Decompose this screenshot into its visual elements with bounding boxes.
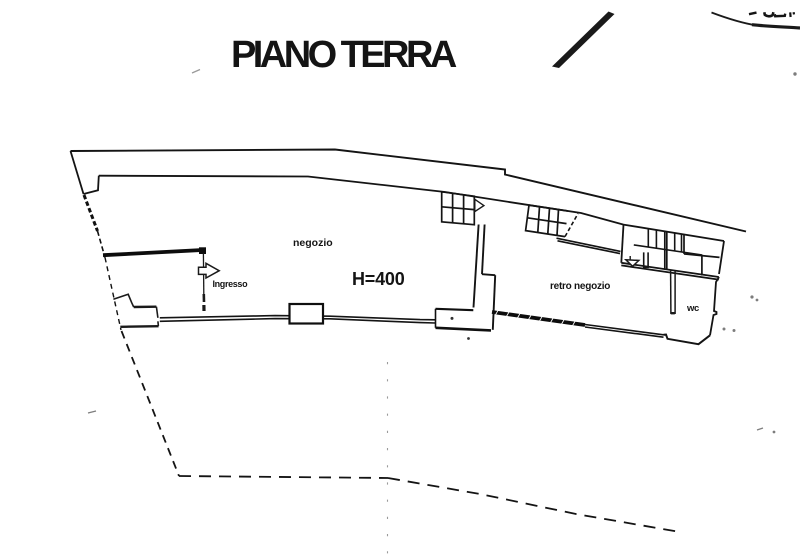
svg-text:Ingresso: Ingresso bbox=[213, 279, 249, 289]
svg-text:retro negozio: retro negozio bbox=[550, 281, 610, 292]
svg-text:H=400: H=400 bbox=[352, 269, 405, 289]
svg-text:negozio: negozio bbox=[293, 237, 333, 249]
svg-text:wc: wc bbox=[686, 303, 699, 314]
svg-text:PIANO TERRA: PIANO TERRA bbox=[231, 34, 457, 76]
